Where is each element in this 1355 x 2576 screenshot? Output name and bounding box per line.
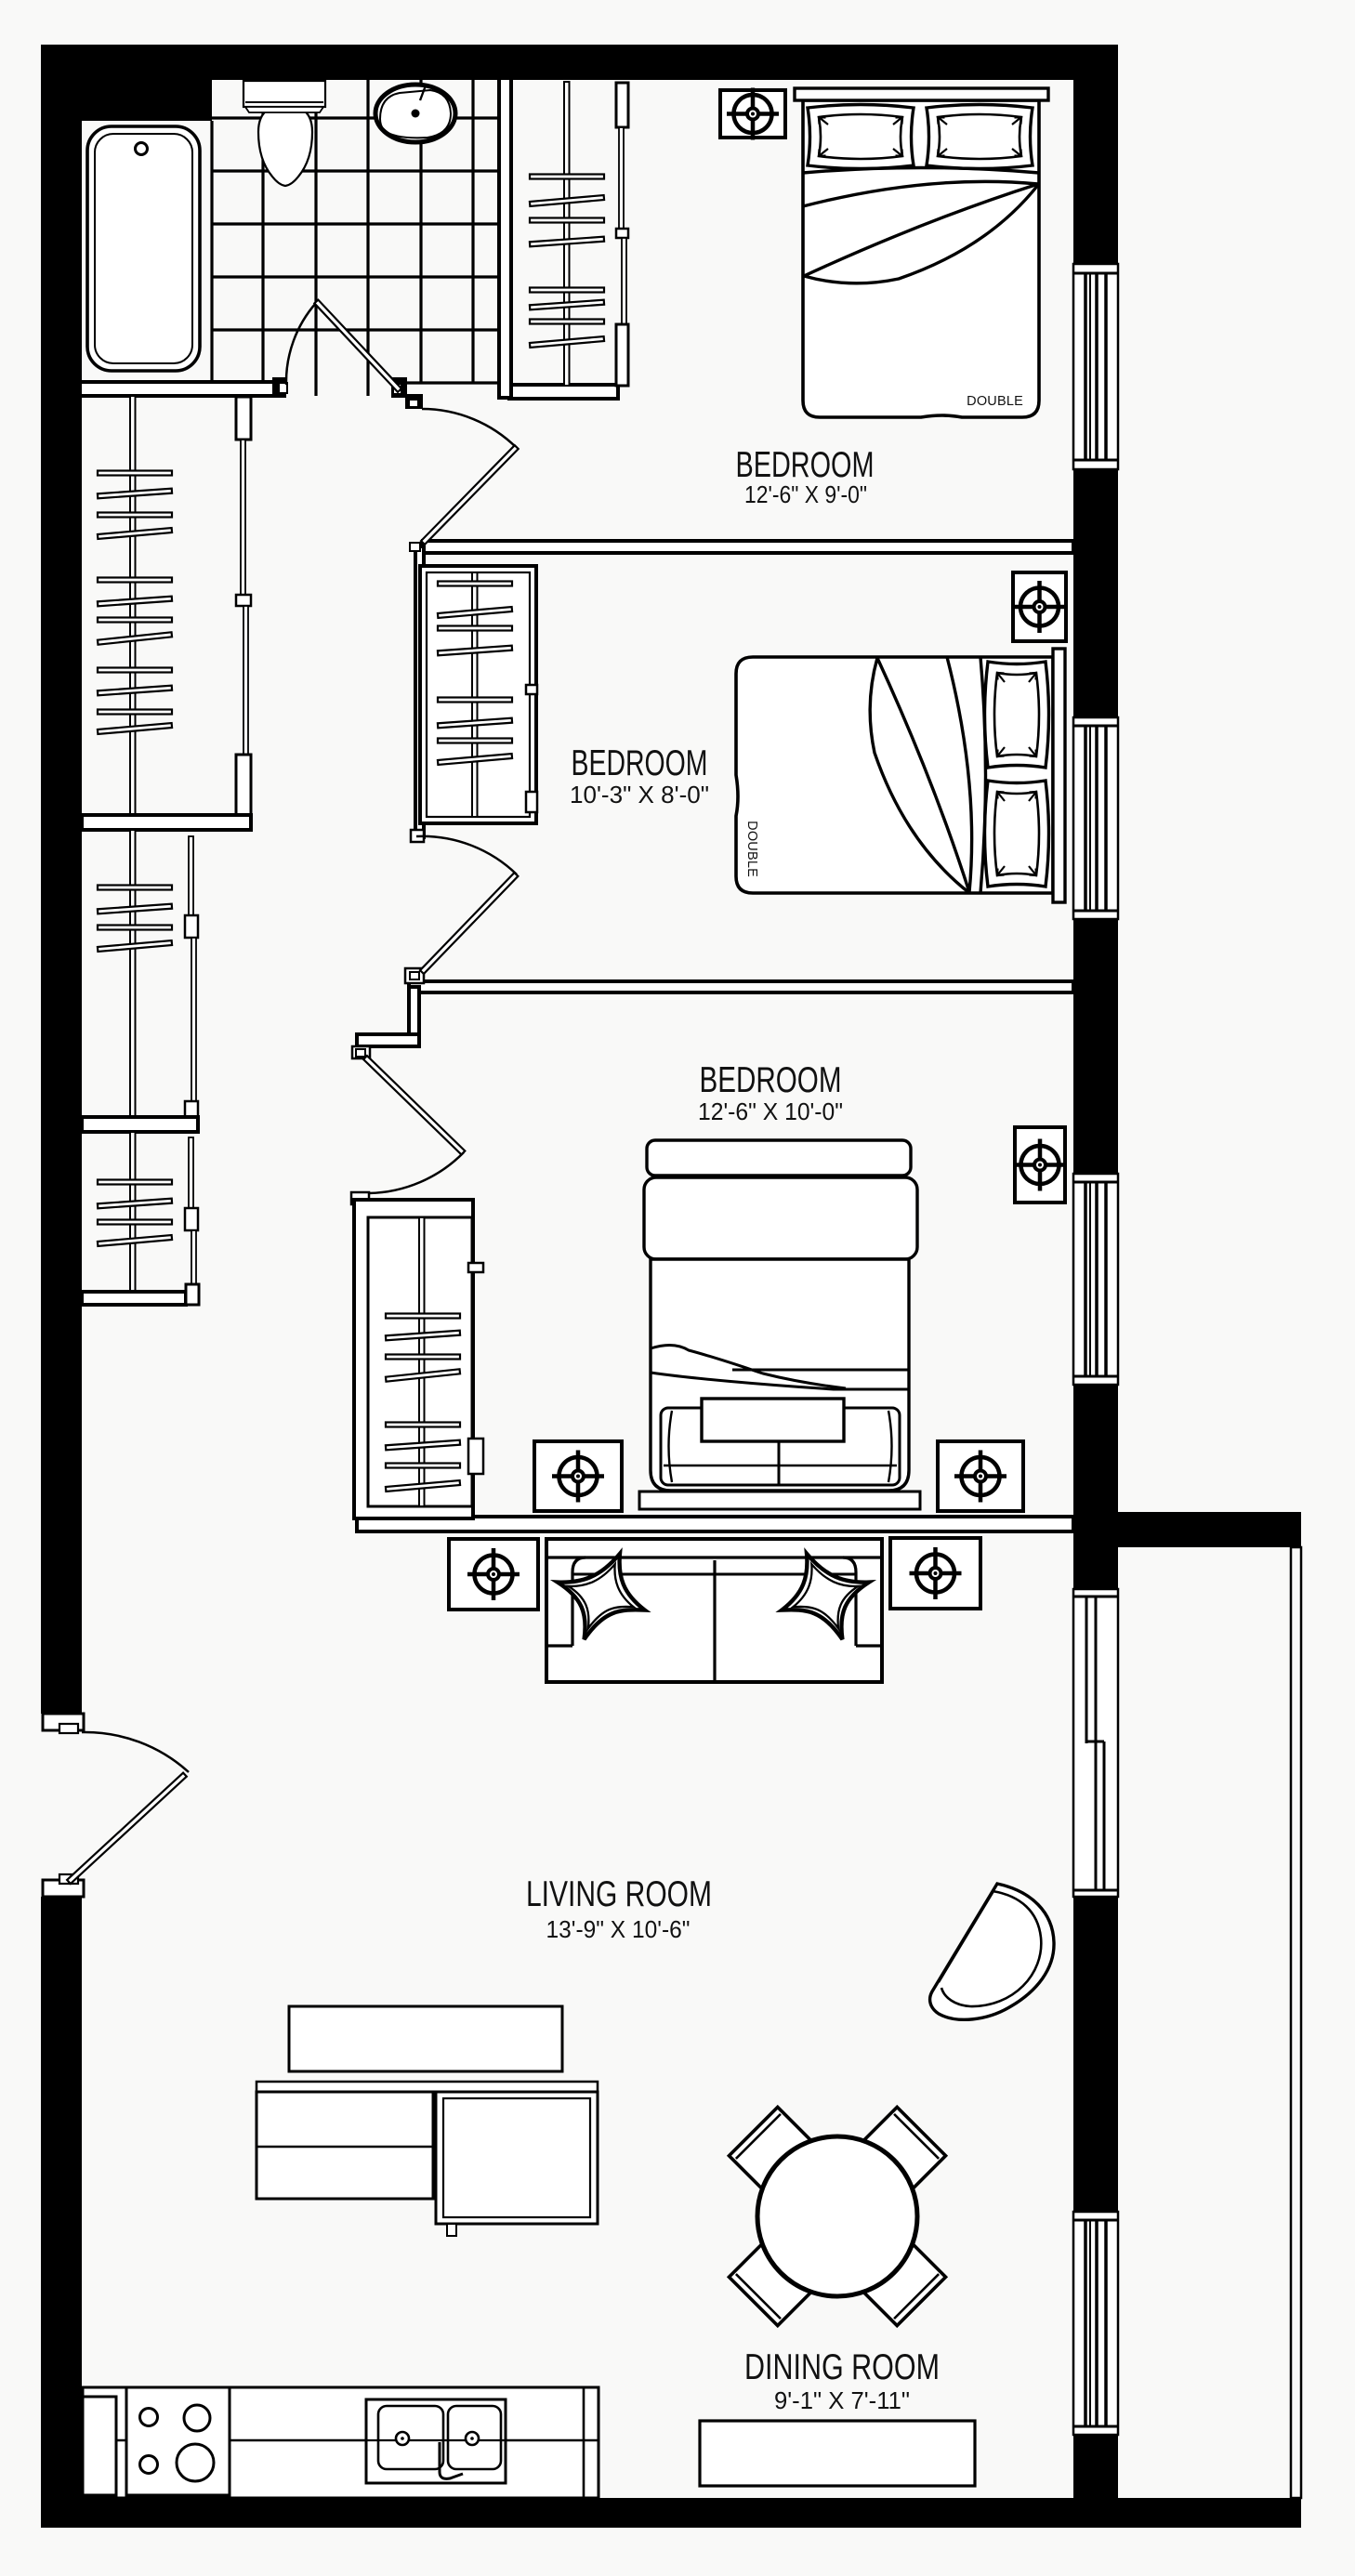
svg-text:BEDROOM: BEDROOM (700, 1060, 842, 1100)
svg-text:BEDROOM: BEDROOM (736, 445, 875, 485)
svg-text:LIVING ROOM: LIVING ROOM (526, 1874, 712, 1914)
svg-text:DINING ROOM: DINING ROOM (744, 2347, 940, 2387)
svg-text:BEDROOM: BEDROOM (572, 743, 708, 783)
svg-text:12'-6" X 9'-0": 12'-6" X 9'-0" (744, 480, 867, 508)
svg-text:9'-1" X 7'-11": 9'-1" X 7'-11" (774, 2386, 910, 2414)
svg-text:10'-3" X 8'-0": 10'-3" X 8'-0" (570, 781, 709, 808)
svg-text:13'-9" X 10'-6": 13'-9" X 10'-6" (546, 1915, 691, 1943)
svg-text:12'-6" X 10'-0": 12'-6" X 10'-0" (698, 1097, 843, 1125)
